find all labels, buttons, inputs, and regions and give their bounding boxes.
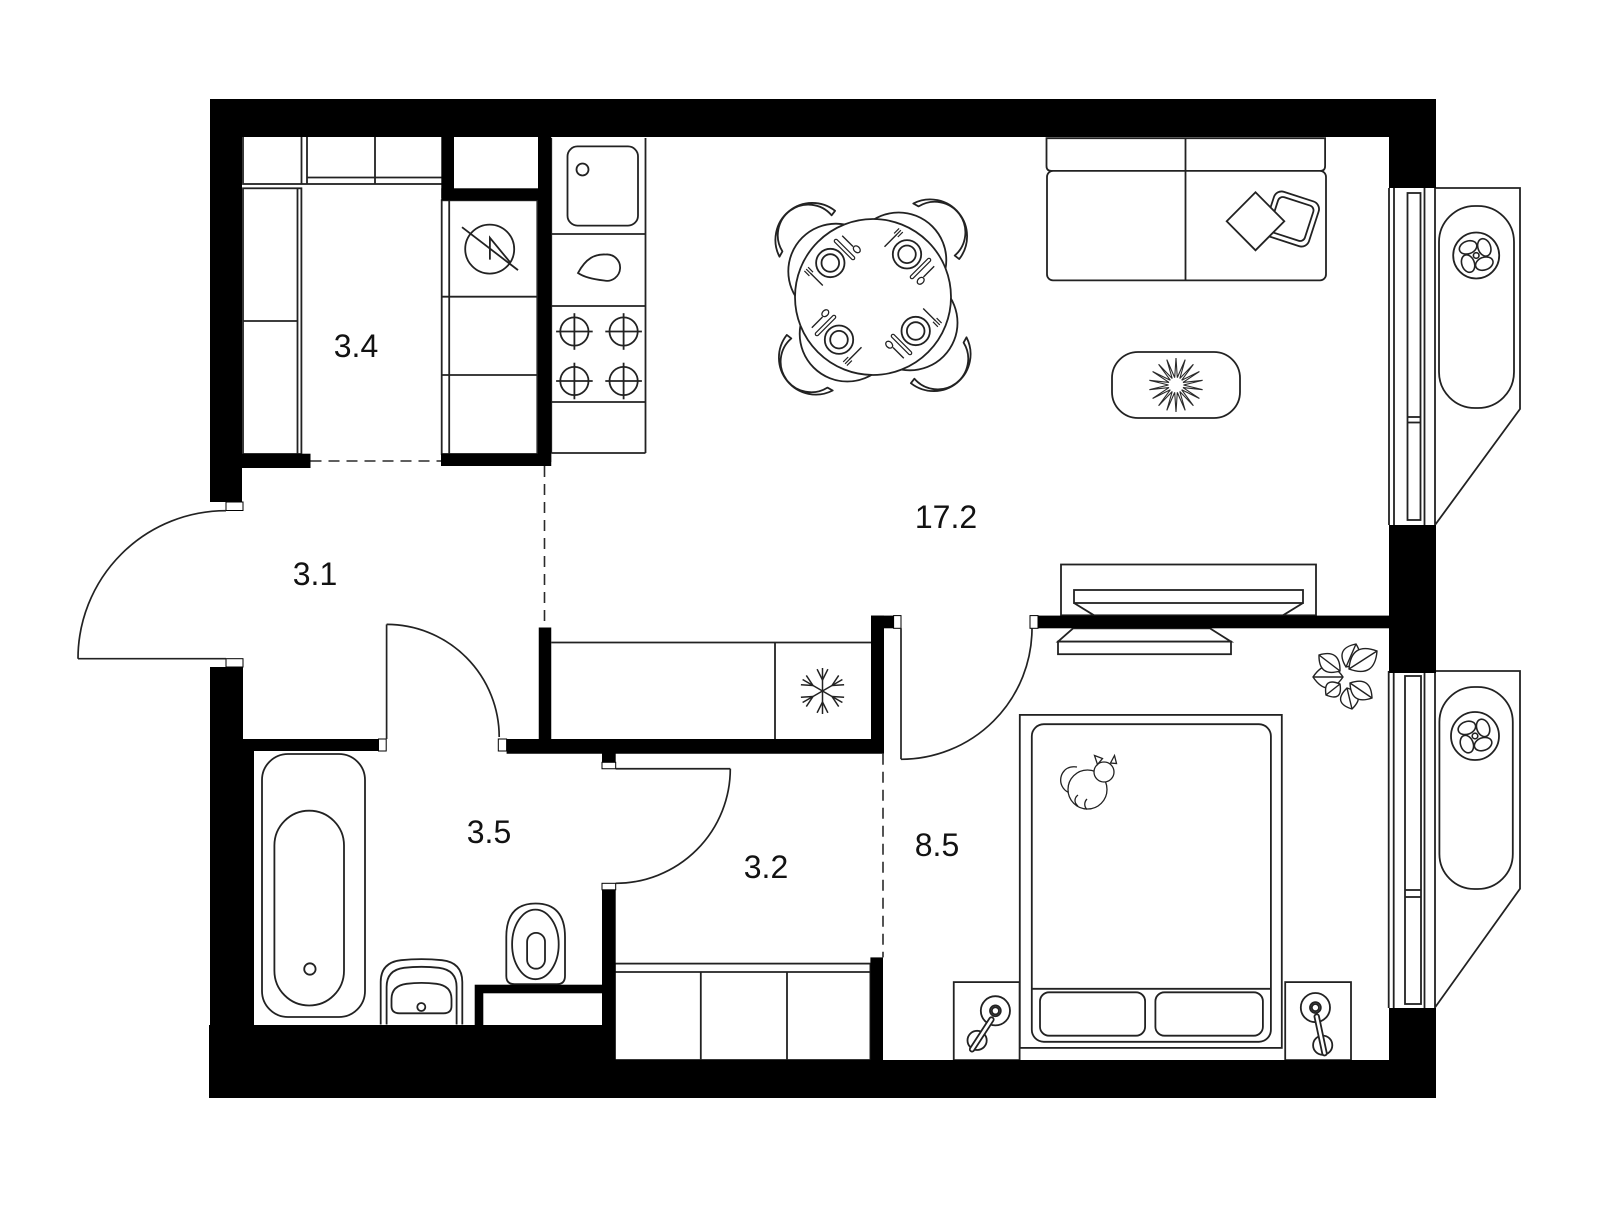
svg-text:3.1: 3.1 (293, 556, 337, 592)
svg-text:3.2: 3.2 (744, 849, 788, 885)
svg-text:17.2: 17.2 (915, 499, 977, 535)
svg-text:8.5: 8.5 (915, 827, 959, 863)
svg-text:3.4: 3.4 (334, 328, 378, 364)
svg-text:3.5: 3.5 (467, 814, 511, 850)
